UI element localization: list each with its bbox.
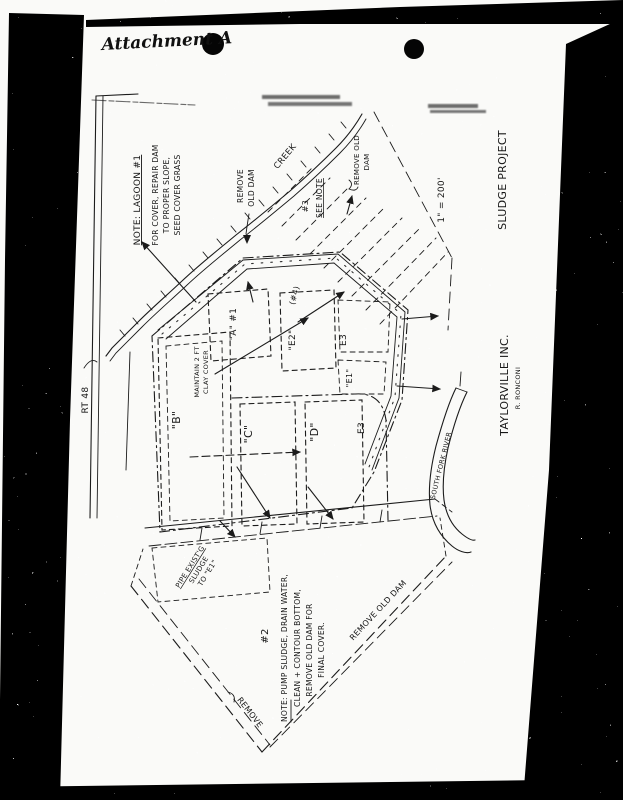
title-engineer: R. RONCONI <box>514 367 522 409</box>
note2-line2: CLEAN + CONTOUR BOTTOM, <box>293 589 302 707</box>
map-scale: 1" = 200' <box>437 177 447 222</box>
remove-old-dam-2-line1: REMOVE OLD <box>353 135 361 185</box>
maintain-cover-line1: MAINTAIN 2 FT <box>193 346 201 397</box>
cell-e3-upper-label: E3 <box>339 334 349 346</box>
note1-heading: NOTE: LAGOON #1 <box>133 155 143 246</box>
scanned-page: Attachment A RT 48 NOTE: LAGOON #1 FOR C… <box>0 0 623 800</box>
remove-old-dam-2-line2: DAM <box>363 154 371 171</box>
cell-c-label: "C" <box>242 425 255 444</box>
cell-b-label: "B" <box>170 411 183 430</box>
note1-line3: SEED COVER GRASS <box>173 154 182 235</box>
remove-old-dam-1-line1: REMOVE <box>236 169 245 203</box>
note-lagoon-1: NOTE: LAGOON #1 FOR COVER, REPAIR DAM TO… <box>133 144 182 245</box>
site-map-scan: Attachment A RT 48 NOTE: LAGOON #1 FOR C… <box>0 0 623 800</box>
note2-line3: REMOVE OLD DAM FOR <box>305 603 314 696</box>
note1-line1: FOR COVER, REPAIR DAM <box>151 144 160 245</box>
road-label: RT 48 <box>81 387 91 414</box>
note3-ref: #3 <box>301 200 310 212</box>
note1-line2: TO PROPER SLOPE, <box>162 157 171 234</box>
note2-line1: NOTE: PUMP SLUDGE, DRAIN WATER, <box>280 574 289 722</box>
maintain-cover-line2: CLAY COVER <box>202 350 210 394</box>
note2-line4: FINAL COVER. <box>317 622 326 678</box>
cell-d-label: "D" <box>308 422 321 442</box>
see-note-label: SEE NOTE <box>315 178 324 218</box>
title-project: SLUDGE PROJECT <box>496 130 509 230</box>
remove-old-dam-1-line2: OLD DAM <box>247 169 256 207</box>
title-company: TAYLORVILLE INC. <box>498 334 511 437</box>
cell-e1-label: "E1" <box>345 369 354 388</box>
note2-ref: #2 <box>260 628 271 643</box>
cell-e2-label: "E2" <box>288 330 298 351</box>
punch-hole-right <box>404 39 424 59</box>
